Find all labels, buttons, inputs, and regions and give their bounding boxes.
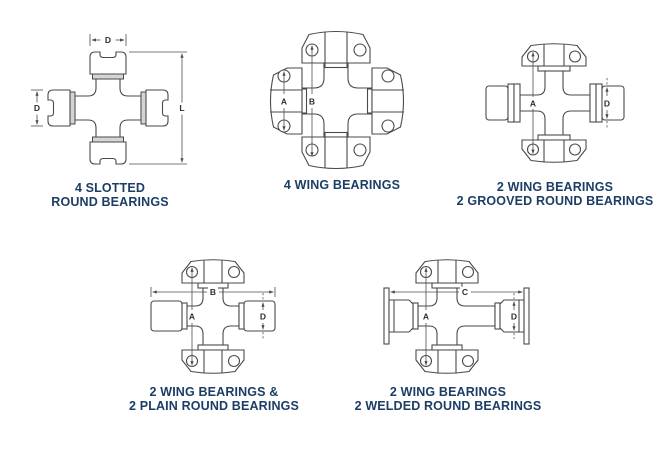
figure-wing-grooved-round: A D (480, 38, 630, 173)
caption-line-1: 4 WING BEARINGS (257, 179, 427, 193)
groove-ring (514, 84, 520, 122)
bolt-hole (570, 144, 581, 155)
caption-line-2: ROUND BEARINGS (25, 196, 195, 210)
caption-line-2: 2 WELDED ROUND BEARINGS (336, 400, 560, 414)
caption-line-2: 2 PLAIN ROUND BEARINGS (102, 400, 326, 414)
dim-label-c: C (462, 287, 468, 297)
diagram-wing-plain-round: B A D (147, 248, 282, 383)
ujoint-body (75, 79, 141, 137)
bolt-hole (354, 144, 366, 156)
dim-label-d-left: D (34, 103, 40, 113)
figure-slotted-round-bearings: D D L (26, 30, 191, 180)
weld-flange-right (524, 288, 529, 344)
caption-line-1: 4 SLOTTED (25, 182, 195, 196)
caption-slotted-round-bearings: 4 SLOTTED ROUND BEARINGS (25, 182, 195, 209)
bolt-hole (570, 51, 581, 62)
dim-label-a: A (423, 311, 429, 321)
caption-line-1: 2 WING BEARINGS & (102, 386, 326, 400)
figure-wing-welded-round: C A D (379, 248, 534, 388)
caption-line-1: 2 WING BEARINGS (443, 181, 667, 195)
dim-label-b: B (210, 287, 216, 297)
seat-right (239, 303, 244, 329)
seat-left (182, 303, 187, 329)
bolt-hole (463, 356, 474, 367)
groove-ring (596, 84, 602, 122)
caption-four-wing-bearings: 4 WING BEARINGS (257, 179, 427, 193)
dim-label-a: A (530, 98, 536, 108)
bolt-hole (382, 120, 394, 132)
collar-top (93, 74, 124, 79)
caption-wing-grooved-round: 2 WING BEARINGS 2 GROOVED ROUND BEARINGS (443, 181, 667, 208)
seat-top (432, 283, 462, 288)
round-cup-left (389, 300, 413, 332)
bearing-types-diagram-page: D D L 4 SLOTTED ROUND BEARINGS (0, 0, 670, 450)
seat-bottom (432, 345, 462, 350)
groove-ring (590, 84, 596, 122)
seat-bottom (198, 345, 228, 350)
weld-flange-left (384, 288, 389, 344)
dim-label-d-top: D (105, 35, 111, 45)
seat-bottom (325, 133, 347, 138)
bolt-hole (382, 70, 394, 82)
slotted-cup-bottom (90, 142, 126, 164)
diagram-wing-grooved-round: A D (480, 38, 630, 168)
seat-top (325, 63, 347, 68)
slotted-cup-top (90, 52, 126, 74)
diagram-slotted-round-bearings: D D L (26, 30, 191, 175)
caption-wing-welded-round: 2 WING BEARINGS 2 WELDED ROUND BEARINGS (336, 386, 560, 413)
caption-line-1: 2 WING BEARINGS (336, 386, 560, 400)
seat-bottom (538, 135, 570, 140)
bolt-hole (463, 267, 474, 278)
dim-label-b: B (309, 97, 315, 107)
slotted-cup-left (48, 90, 70, 126)
seat-right (368, 89, 373, 113)
bolt-hole (229, 267, 240, 278)
dim-label-a: A (281, 97, 287, 107)
dim-label-l: L (179, 103, 184, 113)
diagram-four-wing-bearings: A B (262, 26, 412, 176)
collar-bottom (93, 137, 124, 142)
round-cup-left (486, 86, 508, 120)
slotted-cup-right (146, 90, 168, 126)
round-cup-left (151, 301, 182, 331)
seat-left (413, 303, 418, 329)
caption-wing-plain-round: 2 WING BEARINGS & 2 PLAIN ROUND BEARINGS (102, 386, 326, 413)
dim-label-d: D (260, 311, 266, 321)
dim-label-d: D (604, 98, 610, 108)
dim-label-d: D (511, 311, 517, 321)
seat-right (495, 303, 500, 329)
diagram-wing-welded-round: C A D (379, 248, 534, 383)
collar-right (141, 92, 146, 124)
figure-wing-plain-round: B A D (147, 248, 282, 388)
bolt-hole (354, 44, 366, 56)
dim-label-a: A (189, 311, 195, 321)
seat-top (538, 66, 570, 71)
bolt-hole (229, 356, 240, 367)
seat-left (302, 89, 307, 113)
collar-left (70, 92, 75, 124)
groove-ring (508, 84, 514, 122)
caption-line-2: 2 GROOVED ROUND BEARINGS (443, 195, 667, 209)
figure-four-wing-bearings: A B (262, 26, 412, 181)
